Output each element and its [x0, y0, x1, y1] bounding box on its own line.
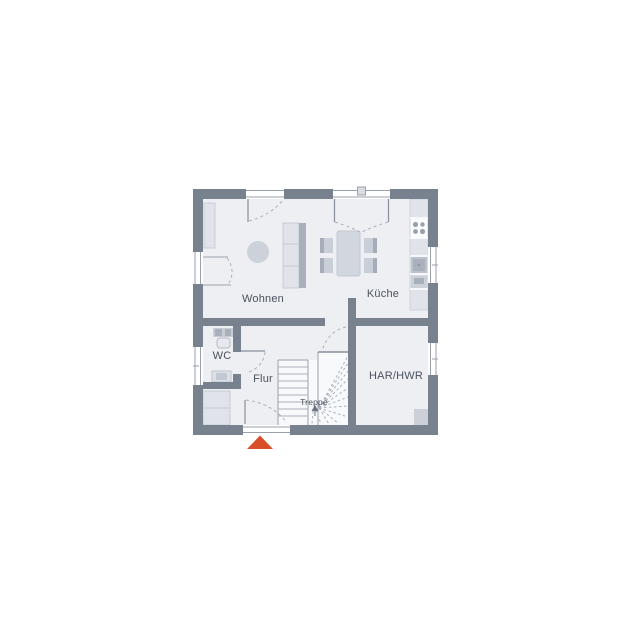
window-left-wc: [193, 347, 203, 385]
outer-wall-right: [428, 189, 438, 435]
inner-wall-wc-right-upper: [233, 326, 241, 352]
outer-wall-top: [193, 189, 438, 199]
window-right-kitchen: [428, 247, 438, 283]
room-label-wohnen: Wohnen: [242, 293, 284, 305]
inner-wall-hall-right: [348, 318, 428, 326]
floorplan-drawing: [0, 0, 636, 636]
shelf-unit: [283, 223, 306, 288]
chair: [320, 238, 333, 253]
chair: [364, 238, 377, 253]
kitchen-sink: [411, 257, 427, 288]
round-table: [247, 241, 269, 263]
room-label-wc: WC: [213, 350, 232, 362]
wardrobe: [203, 391, 230, 425]
wc-sink: [212, 371, 231, 382]
room-label-flur: Flur: [253, 373, 273, 385]
inner-wall-hall-left: [203, 318, 325, 326]
room-label-treppe: Treppe: [300, 397, 328, 407]
stove: [411, 219, 428, 238]
dining-table: [337, 231, 360, 276]
room-label-har-hwr: HAR/HWR: [369, 370, 423, 382]
window-right-har: [428, 343, 438, 375]
chair: [320, 258, 333, 273]
outer-wall-bottom: [193, 425, 438, 435]
inner-wall-kitchen-stub: [348, 298, 356, 318]
kitchen-counter: [410, 199, 428, 310]
sideboard: [204, 203, 215, 248]
inner-wall-wc-bottom: [203, 382, 241, 389]
entrance-arrow: [247, 436, 273, 450]
inner-wall-har-divider: [348, 326, 356, 425]
chair: [364, 258, 377, 273]
room-label-kueche: Küche: [367, 288, 399, 300]
floorplan-canvas: Wohnen Küche WC Flur Treppe HAR/HWR: [0, 0, 636, 636]
outer-wall-left: [193, 189, 203, 435]
door-knob-detail: [358, 187, 366, 195]
staircase: [278, 352, 348, 425]
